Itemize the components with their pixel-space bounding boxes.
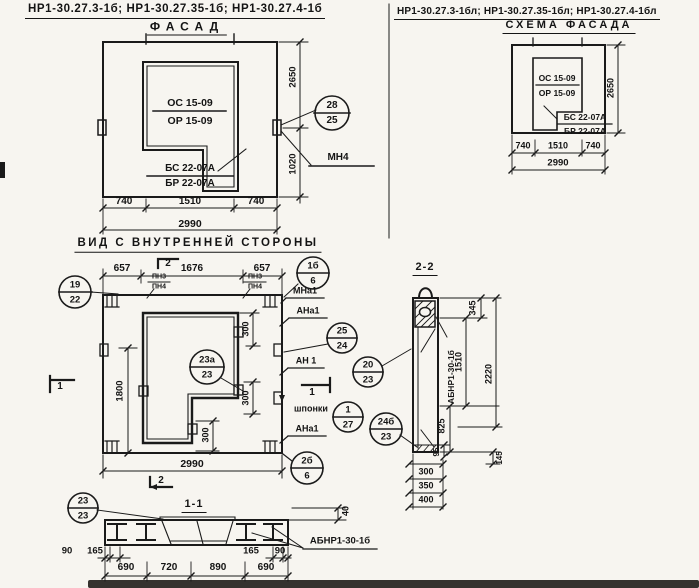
label-ana1: АНа1 [296, 307, 319, 316]
scheme-dim-extensions [512, 45, 625, 174]
callout-19-22-top: 19 [70, 280, 81, 290]
facade-subtitle: ФАСАД [147, 21, 227, 36]
label-shponki: шпонки [294, 405, 328, 414]
callout-1-27-bot: 27 [343, 420, 354, 430]
facade-corner-mark-bot: БР 22-07А [165, 179, 214, 189]
dim-690-1: 690 [118, 563, 135, 573]
left-edge-blot [0, 162, 5, 178]
facade-dim-embed: 1020 [288, 153, 298, 174]
callout-1b-6-top: 1б [307, 261, 318, 271]
scheme-dim-lines [512, 45, 618, 170]
dim-1510: 1510 [455, 352, 464, 372]
facade-dim-left: 740 [116, 197, 133, 207]
callout-23-23-bot: 23 [78, 511, 89, 521]
callout-20-23-bot: 23 [363, 375, 374, 385]
facade-callout-top: 28 [326, 101, 337, 111]
callout-2b-6-bot: 6 [304, 471, 309, 481]
scheme-corner-leader [544, 106, 557, 119]
section-1-mark-right [302, 378, 330, 392]
dim-720: 720 [161, 563, 178, 573]
section11-beam-label: АБНР1-30-1б [310, 536, 370, 546]
dim-825: 825 [438, 418, 447, 433]
callout-23-23-top: 23 [78, 496, 89, 506]
facade-drawing [98, 34, 374, 234]
callout-2b-6-leader [283, 454, 292, 461]
callout-19-22-bot: 22 [70, 295, 81, 305]
inner-view-title: ВИД С ВНУТРЕННЕЙ СТОРОНЫ [74, 238, 321, 253]
pn-bot-right: ПН4 [248, 284, 262, 291]
inner-dim-mid: 1676 [181, 264, 203, 274]
scheme-dim-height: 2650 [607, 78, 616, 98]
section11-inner-lines [160, 517, 235, 544]
label-an1-underline [280, 368, 324, 375]
section22-dim-extensions [413, 298, 502, 509]
scheme-drawing [509, 38, 625, 174]
scheme-corner-mark-bot: БР 22-07А [564, 127, 606, 136]
facade-opening-mark-bot: ОР 15-09 [168, 116, 213, 127]
facade-dim-height: 2650 [288, 66, 298, 87]
callout-25-24-top: 25 [337, 326, 348, 336]
dim-300-mid: 300 [242, 390, 251, 405]
dim-300-stack: 300 [418, 468, 433, 477]
inner-dim-right: 657 [254, 264, 271, 274]
facade-callout-leader [281, 110, 316, 125]
dim-890: 890 [210, 563, 227, 573]
section-2-mark-bottom-label: 2 [158, 476, 164, 486]
dim-145: 145 [496, 451, 504, 464]
dim-1800: 1800 [115, 380, 125, 401]
callout-1-27-top: 1 [345, 405, 350, 415]
scheme-corner-mark-top: БС 22-07А [564, 113, 606, 122]
shponki-arrowhead [279, 395, 285, 402]
dim-345: 345 [469, 300, 478, 315]
callout-20-23-leader [382, 349, 411, 366]
section-2-2-title: 2-2 [413, 262, 438, 276]
label-ana1-2: АНа1 [295, 425, 318, 434]
label-mna1-underline [281, 298, 324, 303]
dim-95: 95 [433, 448, 441, 457]
dim-165-right: 165 [243, 546, 259, 556]
callout-20-23-top: 20 [363, 360, 374, 370]
dim-90-left: 90 [62, 546, 73, 556]
dim-165-left: 165 [87, 546, 103, 556]
facade-callout-bot: 25 [326, 116, 337, 126]
scheme-dim-left: 740 [515, 142, 530, 151]
dim-2220: 2220 [485, 364, 494, 384]
scheme-dim-total: 2990 [547, 158, 568, 168]
facade-embed-label: МН4 [327, 153, 348, 163]
scheme-subtitle: СХЕМА ФАСАДА [503, 20, 636, 34]
dim-300-top: 300 [242, 321, 251, 336]
callout-2b-6-top: 2б [301, 456, 312, 466]
facade-corner-leader [218, 149, 246, 171]
dim-400-stack: 400 [418, 496, 433, 505]
callout-25-24-leader [284, 344, 328, 352]
drawing-sheet: НР1-30.27.3-1б; НР1-30.27.35-1б; НР1-30.… [0, 0, 699, 588]
section-1-1-title: 1-1 [182, 499, 207, 513]
scheme-dim-right: 740 [585, 142, 600, 151]
dim-300-bot: 300 [202, 427, 211, 442]
callout-19-22-leader [91, 292, 118, 294]
pn-top-right: ПН3 [248, 274, 262, 281]
scheme-dim-mid: 1510 [548, 142, 568, 151]
scheme-opening-mark-bot: ОР 15-09 [539, 89, 575, 98]
label-mna1: МНа1 [293, 287, 317, 296]
facade-opening-mark-top: ОС 15-09 [167, 98, 213, 109]
callout-24b-23-top: 24б [378, 417, 394, 427]
callout-23a-23-top: 23а [199, 355, 215, 365]
facade-corner-mark-top: БС 22-07А [165, 164, 215, 174]
callout-23-23-leader [97, 510, 163, 519]
inner-dim-total: 2990 [180, 459, 203, 470]
pn-top-left: ПН3 [152, 274, 166, 281]
section-1-mark-right-label: 1 [309, 388, 315, 398]
section-1-mark-left-label: 1 [57, 382, 63, 392]
callout-25-24-bot: 24 [337, 341, 348, 351]
left-title: НР1-30.27.3-1б; НР1-30.27.35-1б; НР1-30.… [25, 3, 325, 19]
inner-dim-left: 657 [114, 264, 131, 274]
linework-svg [0, 0, 699, 588]
section-2-mark-top-label: 2 [165, 259, 171, 269]
callout-circles [59, 96, 402, 523]
pn-bot-left: ПН4 [152, 284, 166, 291]
label-ana1-underline [280, 318, 327, 326]
facade-dim-right: 740 [248, 197, 265, 207]
dim-90-right: 90 [275, 546, 286, 556]
dim-40: 40 [342, 506, 351, 516]
beam-bolt [420, 308, 431, 317]
right-title: НР1-30.27.3-1бл; НР1-30.27.35-1бл; НР1-3… [394, 6, 660, 20]
label-an1: АН 1 [296, 357, 317, 366]
callout-24b-23-bot: 23 [381, 432, 392, 442]
facade-dim-total: 2990 [178, 219, 201, 230]
callout-1b-6-bot: 6 [310, 276, 315, 286]
beam-profiles [108, 524, 282, 540]
facade-dim-mid: 1510 [179, 197, 201, 207]
dim-350-stack: 350 [418, 482, 433, 491]
callout-23a-23-bot: 23 [202, 370, 213, 380]
label-ana1-2-underline [280, 436, 326, 443]
bottom-scan-bar [88, 580, 699, 588]
lifting-loop [419, 288, 432, 298]
scheme-opening-mark-top: ОС 15-09 [539, 74, 576, 83]
dim-690-2: 690 [258, 563, 275, 573]
